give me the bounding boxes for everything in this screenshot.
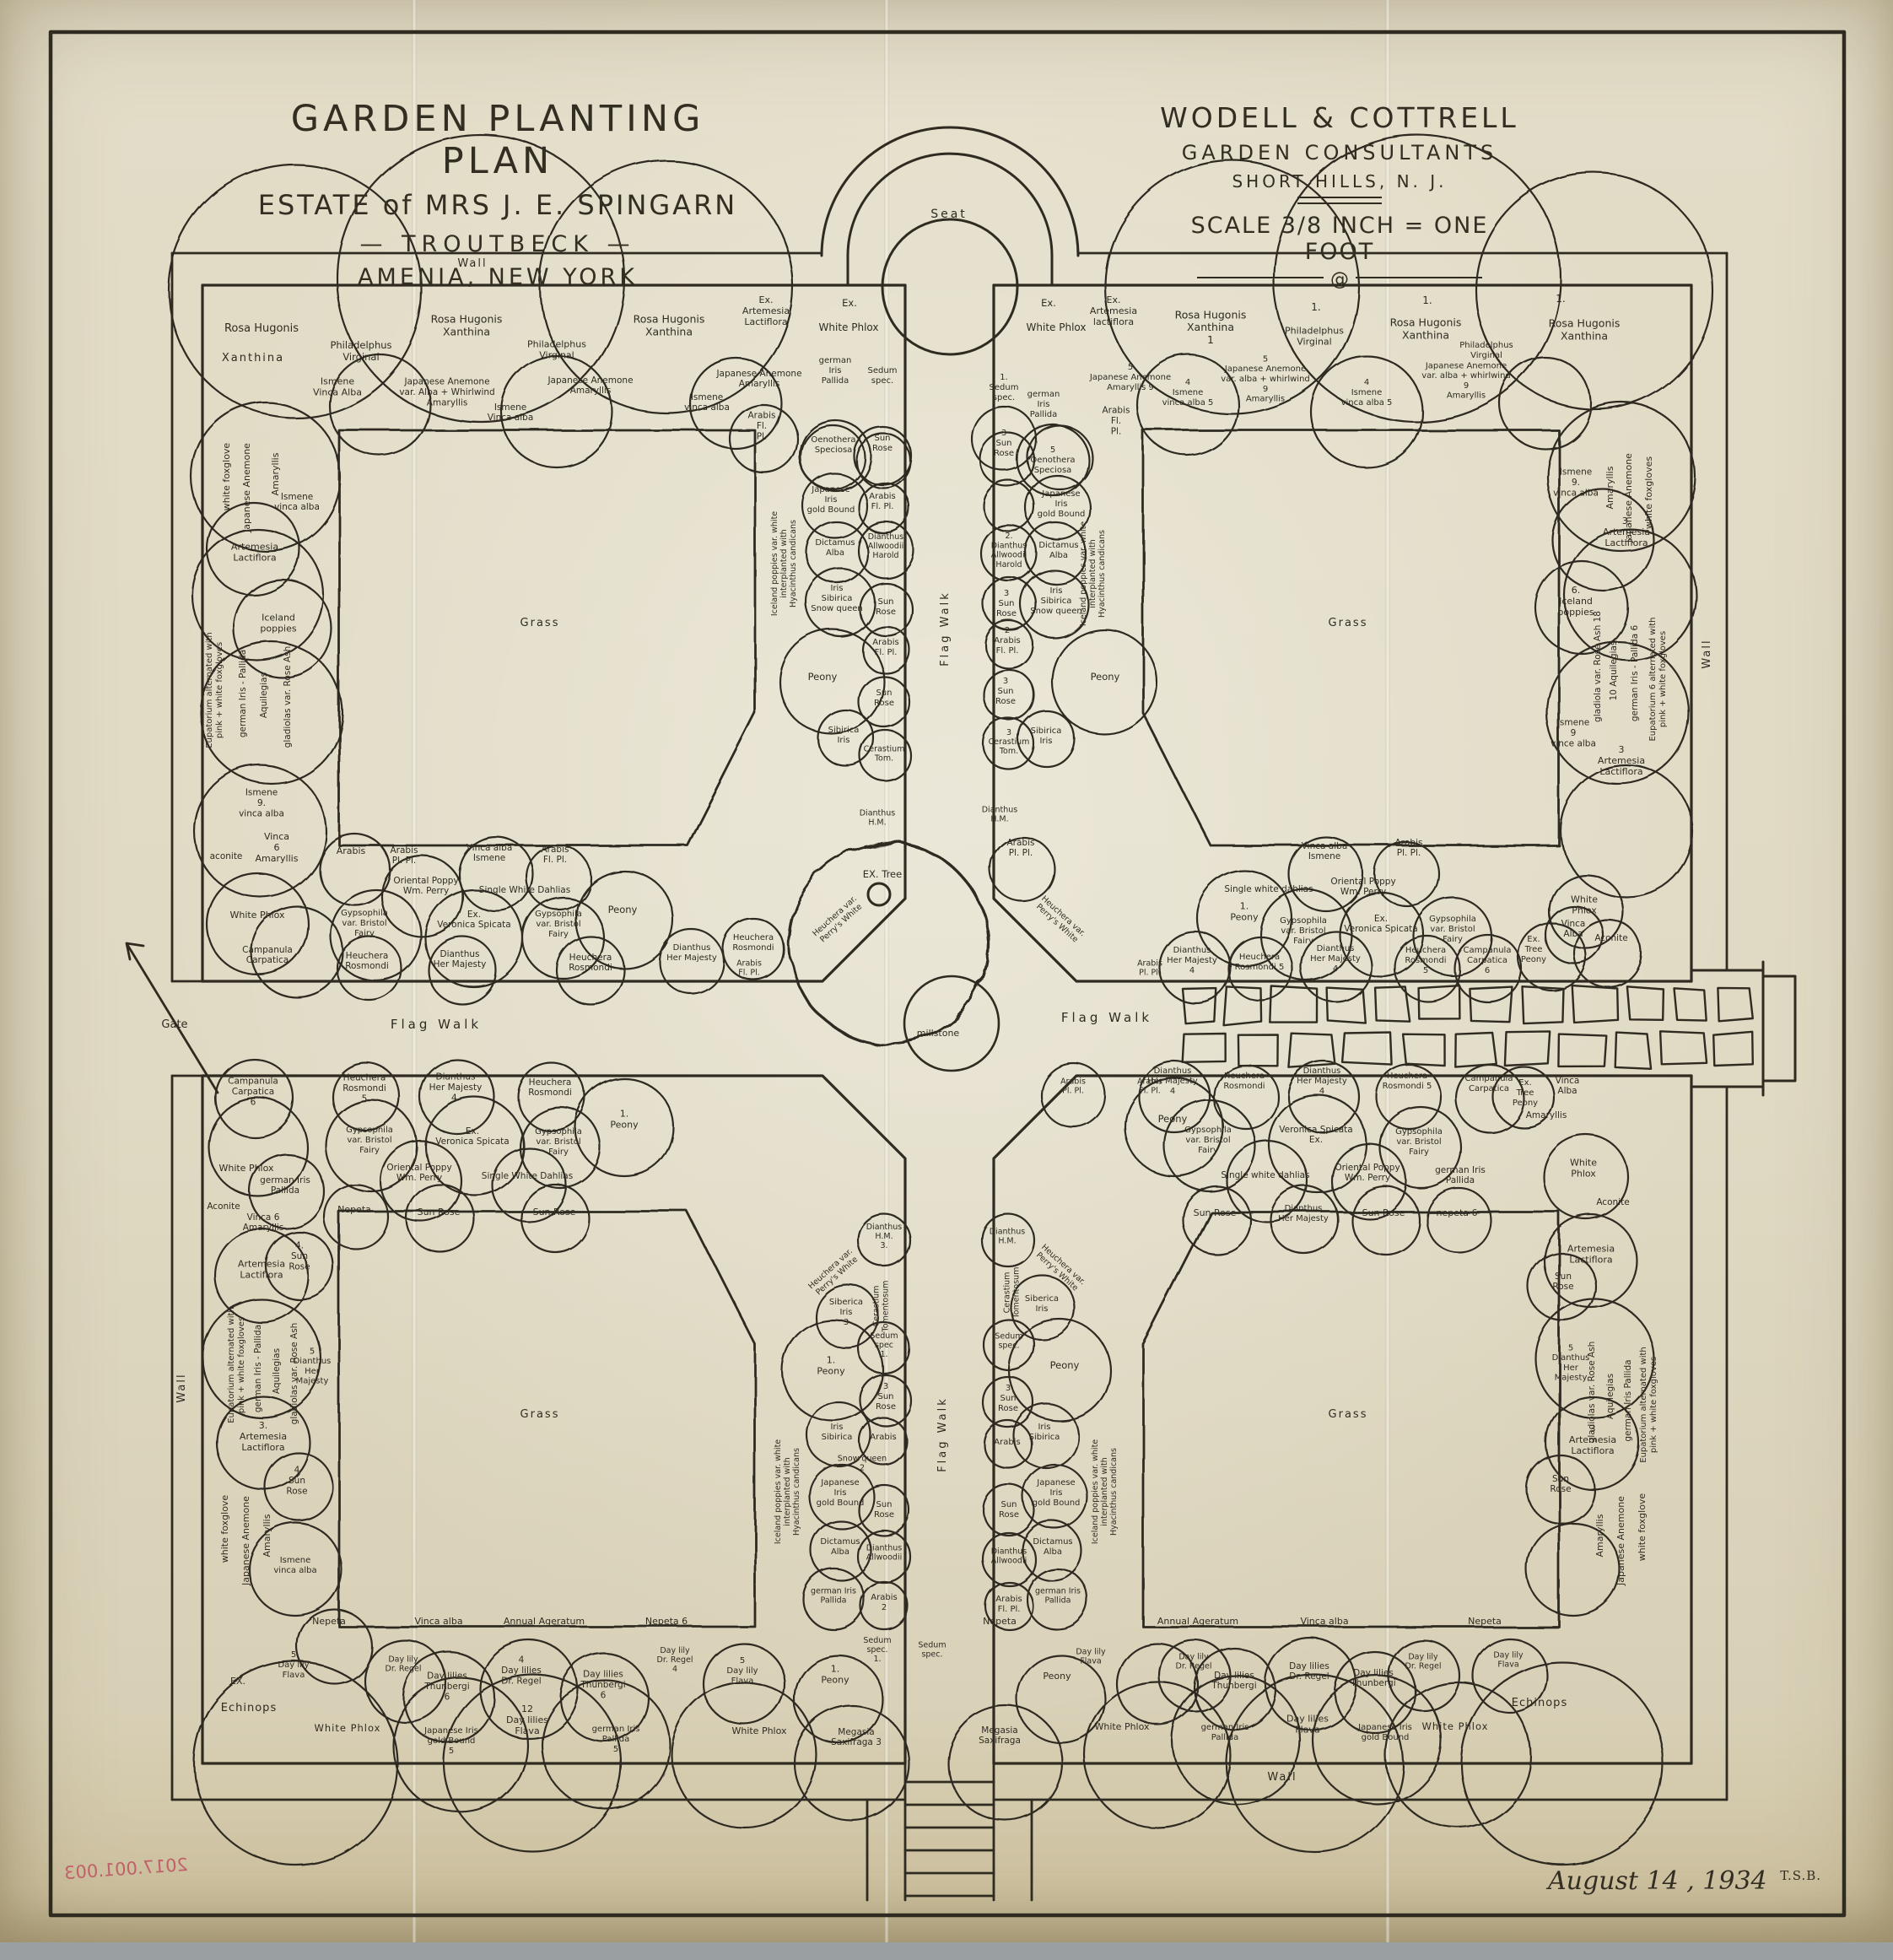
plant-label: 5OenotheraSpeciosa [1030, 445, 1075, 475]
plant-label: DictamusAlba [1038, 541, 1078, 560]
seat-apse-linework [822, 127, 1078, 354]
plant-label: DictamusAlba [820, 1537, 860, 1557]
plant-label: SunRose [1552, 1272, 1573, 1292]
gate-label: Gate [161, 1018, 187, 1031]
plant-label: Nepeta [312, 1616, 346, 1627]
plant-label: Peony [1043, 1671, 1071, 1682]
plan-labels: WallWallWallWallFlag WalkFlag WalkFlag W… [63, 208, 1713, 1883]
plant-label: Amaryllis [1526, 1110, 1567, 1120]
plant-label: Ex.Veronica Spicata [435, 1126, 509, 1147]
flagstone [1470, 987, 1512, 1023]
plant-label: SunRose [999, 1500, 1019, 1520]
plant-label: Gypsophilavar. BristolFairy [1395, 1127, 1443, 1157]
plant-label: Oriental PoppyWm. Perry [1330, 877, 1395, 897]
firm-block: WODELL & COTTRELL GARDEN CONSULTANTS SHO… [1154, 101, 1525, 288]
plant-label: HeucheraRosmondi5 [342, 1073, 386, 1104]
plant-label: Gypsophilavar. BristolFairy [346, 1126, 393, 1155]
plant-label: DianthusH.M.3. [866, 1223, 903, 1250]
plant-label: 1.Peony [610, 1109, 639, 1131]
plant-label: Eupatorium 6 alternated withpink + white… [1648, 617, 1668, 741]
flagstone [1713, 1032, 1753, 1066]
plant-label: ArabisPl. Pl. [1395, 838, 1423, 858]
plant-label: JapaneseIrisgold Bound [1033, 1478, 1081, 1508]
plant-label: 6.Icelandpoppies [1557, 585, 1594, 618]
plant-label: White Phlox [1094, 1721, 1150, 1732]
draftsman-initials: T.S.B. [1780, 1868, 1821, 1883]
plant-label: Rosa HugonisXanthina [634, 313, 705, 338]
plant-label: white foxglove [221, 443, 232, 511]
plant-label: PhiladelphusVirginal [1285, 326, 1344, 348]
scale-underline: @ [1154, 267, 1525, 288]
plant-label: DianthusAllwoodii [866, 1543, 903, 1562]
title-block: GARDEN PLANTING PLAN ESTATE of MRS J. E.… [253, 98, 742, 290]
millstone-circle [904, 976, 999, 1071]
plant-label: IrisSibirica [1029, 1423, 1060, 1442]
plant-label: Amaryllis [270, 452, 281, 495]
plant-label: Ex.ArtemesiaLactiflora [742, 294, 790, 327]
plant-label: german IrisPallida [260, 1175, 310, 1196]
plant-label: Veronica SpicataEx. [1279, 1125, 1352, 1145]
plant-label: White Phlox [1027, 321, 1087, 333]
plant-label: Single White Dahlias [479, 885, 570, 895]
plant-label: 4SunRose [286, 1466, 307, 1497]
wall-label-left: Wall [175, 1373, 188, 1402]
plant-label: 1.Peony [821, 1664, 849, 1686]
plant-label: Arabis [337, 845, 366, 856]
firm-underline [1297, 197, 1382, 204]
plant-label: Aquilegias [272, 1348, 282, 1394]
plant-label: 3SunRose [996, 589, 1017, 618]
plant-label: Ex.Veronica Spicata [437, 910, 510, 930]
scale-underline-left [1197, 277, 1324, 278]
plant-label: Aconite [1596, 1197, 1629, 1207]
plant-label: White Phlox [1421, 1720, 1488, 1732]
plant-label: Snow queen2 [838, 1454, 887, 1472]
plant-label: german IrisPallida [1201, 1723, 1249, 1742]
plant-label: germanIrisPallida [1027, 390, 1060, 419]
plant-label: CampanulaCarpatica [242, 945, 293, 965]
plant-label: White Phlox [218, 1163, 274, 1174]
plant-label: 2.DianthusAllwoodiiHarold [991, 532, 1027, 570]
plant-label: 3SunRose [876, 1382, 896, 1412]
bed-outline [324, 1185, 388, 1249]
plant-label: SibericaIris3 [829, 1298, 863, 1327]
plant-label: DianthusHer Majesty4 [1310, 944, 1361, 974]
plant-label: 5DianthusHerMajesty [1552, 1343, 1590, 1382]
plant-label: SibericaIris [1025, 1294, 1059, 1314]
location-line: AMENIA, NEW YORK [253, 264, 742, 290]
flagstone [1675, 988, 1707, 1020]
plant-label: 2ArabisFl. Pl. [994, 626, 1020, 656]
plant-label: CerastiumTomentosum [871, 1281, 890, 1333]
plant-label: Vinca alba [414, 1616, 462, 1627]
plant-label: ArtemesiaLactiflora [1567, 1244, 1615, 1266]
plant-label: DictamusAlba [815, 538, 855, 558]
plant-label: HeucheraRosmondi [732, 933, 774, 953]
grass-label: Grass [1329, 1408, 1368, 1421]
plant-label: Icelandpoppies [260, 613, 297, 634]
plant-label: IsmeneVinca alba [488, 402, 534, 423]
wall-label-right: Wall [1701, 639, 1713, 668]
plant-label: Sun Rose [533, 1207, 576, 1218]
flagstone [1572, 985, 1618, 1023]
plant-label: MegasiaSaxifraga [979, 1725, 1021, 1746]
plant-label: OenotheraSpeciosa [811, 435, 855, 455]
flagstone [1342, 1033, 1392, 1065]
plant-label: 1.Peony [1230, 901, 1259, 923]
plant-label: Peony [1158, 1113, 1188, 1125]
seat-label: Seat [930, 208, 968, 221]
plant-label: Peony [1050, 1359, 1080, 1371]
flagstone [1558, 1034, 1606, 1066]
plant-label: Sedumspec1. [870, 1331, 898, 1359]
plant-label: Gypsophilavar. BristolFairy [535, 910, 582, 939]
accession-number: 2017.001.003 [63, 1855, 188, 1883]
plant-label: 1. [1556, 293, 1565, 305]
plant-label: Day liliesFlava [1286, 1714, 1329, 1736]
plant-label: DianthusAllwoodii [991, 1547, 1027, 1565]
plant-label: Ex. [842, 297, 857, 309]
plant-label: Amaryllis [1594, 1514, 1605, 1557]
wall-label-bottom: Wall [1267, 1771, 1297, 1784]
flagstone [1660, 1031, 1707, 1064]
plant-label: Japanese Anemone [241, 443, 252, 533]
plant-label: Nepeta [983, 1616, 1017, 1627]
plant-label: Arabis [994, 1438, 1020, 1447]
plant-label: White Phlox [819, 321, 879, 333]
plant-label: 3SunRose [998, 1384, 1018, 1413]
plant-label: Japanese Anemone [1615, 1496, 1626, 1586]
plant-label: DianthusHer Majesty [666, 943, 717, 963]
plant-label: DianthusHer Majesty [1278, 1204, 1329, 1223]
flagstone [1403, 1034, 1445, 1066]
plant-label: 1. [1422, 294, 1432, 306]
plant-label: Japanese Irisgold Bound5 [423, 1726, 478, 1756]
plant-label: Eupatorium alternated withpink + white f… [205, 632, 224, 748]
plant-label: 3ArtemesiaLactiflora [1598, 744, 1645, 777]
bed-outline [1335, 1652, 1416, 1733]
plant-label: Heuchera var.Perry's White [811, 894, 865, 946]
drawing-date: August 14 , 1934 [1548, 1866, 1767, 1896]
plant-label: EX. [230, 1676, 245, 1687]
plant-label: Vinca alba [1300, 1616, 1348, 1627]
plant-label: Eupatorium alternated withpink + white f… [1639, 1347, 1658, 1463]
plant-label: white foxgloves [1643, 456, 1654, 529]
plant-label: white foxglove [219, 1495, 230, 1563]
plant-label: JapaneseIrisgold Bound [1038, 489, 1086, 519]
plant-label: ArabisFl.Pl. [1103, 406, 1130, 437]
garden-plan-drawing: WallWallWallWallFlag WalkFlag WalkFlag W… [0, 0, 1893, 1960]
plant-label: Single white dahlias [1221, 1170, 1309, 1180]
plant-label: SunRose [874, 1500, 894, 1520]
plant-label: Day lilyDr. Regel [1405, 1652, 1442, 1671]
plant-label: Day lilyFlava [1493, 1650, 1524, 1669]
plant-label: HeucheraRosmondi 5 [1235, 953, 1285, 972]
existing-tree-label: EX. Tree [863, 868, 902, 880]
bed-outline [1385, 1682, 1530, 1828]
plant-label: PhiladelphusVirginal [527, 339, 586, 361]
plant-label: nepeta 6 [1436, 1207, 1477, 1218]
steps-linework [867, 1763, 1032, 1900]
plant-label: MegasiaSaxifraga 3 [831, 1727, 882, 1747]
flagstone [1224, 986, 1262, 1025]
plant-label: Day lilyFlava [1076, 1647, 1106, 1666]
plant-label: Japanese Irisgold Bound [1357, 1723, 1412, 1742]
flagstone-corridor-linework [1691, 962, 1795, 1095]
plant-label: Day lilyDr. Regel [386, 1655, 422, 1673]
plant-label: SibiricaIris [828, 726, 860, 745]
plant-label: Gypsophilavar. BristolFairy [1280, 916, 1327, 946]
plant-label: DictamusAlba [1033, 1537, 1072, 1557]
plant-label: ArabisFl. Pl. [995, 1595, 1022, 1614]
plant-label: Sun Rose [418, 1207, 461, 1218]
plant-label: Rosa Hugonis [224, 322, 299, 335]
plant-label: Nepeta [337, 1204, 371, 1215]
plant-label: ArabisPl. Pl. [1137, 958, 1162, 977]
plant-label: SunRose [872, 434, 893, 453]
flagstone [1718, 988, 1752, 1021]
firm-role: GARDEN CONSULTANTS [1154, 141, 1525, 165]
plant-label: white foxglove [1637, 1493, 1648, 1562]
plant-label: Aquilegias [259, 672, 269, 718]
plant-label: HeucheraRosmondi 5 [1383, 1072, 1432, 1091]
plant-label: gladiola var. Rose Ash 18 [1593, 611, 1603, 722]
flagstone [1455, 1033, 1497, 1067]
bed-outline [1183, 1186, 1250, 1254]
firm-address: SHORT HILLS, N. J. [1154, 171, 1525, 192]
plant-label: 5Day lilyFlava [278, 1650, 309, 1680]
plant-label: Iceland poppies var. whiteinterplanted w… [1079, 521, 1107, 626]
plant-label: Amaryllis [1604, 466, 1615, 509]
plant-label: Single white dahlias [1224, 884, 1313, 894]
plant-label: Japanese Anemonevar. Alba + WhirlwindAma… [399, 377, 494, 408]
bed-outline [1389, 1640, 1459, 1711]
plant-label: Rosa HugonisXanthina [431, 313, 503, 338]
plant-label: HeucheraRosmondi [345, 951, 389, 971]
plant-label: Annual Ageratum [1157, 1616, 1238, 1627]
scale-underline-right [1356, 277, 1482, 278]
plant-label: Echinops [221, 1702, 277, 1714]
plant-label: aconite [210, 851, 243, 861]
flagstone [1183, 988, 1216, 1023]
plant-label: IrisSibiricaSnow queen [1030, 586, 1082, 616]
troutbeck-line: — TROUTBECK — [253, 231, 742, 257]
flagstone [1183, 1034, 1226, 1062]
flag-walk-label: Flag Walk [936, 1396, 949, 1472]
plant-label: Arabis2 [871, 1593, 897, 1612]
plant-label: Sedumspec. [995, 1331, 1022, 1350]
flag-walk-label: Flag Walk [1061, 1010, 1152, 1025]
flagstone [1419, 985, 1460, 1018]
plant-label: Rosa HugonisXanthina [1549, 317, 1621, 343]
plant-label: 3ArtemesiaLactiflora [1569, 1423, 1616, 1456]
flagstone [1505, 1031, 1550, 1066]
plant-label: SibiricaIris [1031, 726, 1062, 746]
plant-label: Rosa HugonisXanthina [1390, 316, 1462, 342]
bed-outline [407, 1185, 474, 1252]
plant-label: Oriental PoppyWm. Perry [386, 1163, 451, 1183]
plant-label: Single White Dahlias [482, 1171, 573, 1181]
plant-label: Heuchera var.Perry's White [806, 1247, 860, 1299]
plant-label: CampanulaCarpatica6 [228, 1077, 278, 1108]
plant-label: german Iris - Pallida [253, 1325, 263, 1412]
plant-label: HeucheraRosmondi [569, 953, 612, 973]
plant-label: White Phlox [314, 1722, 380, 1734]
plant-label: Vinca albaIsmene [1302, 841, 1348, 861]
firm-name: WODELL & COTTRELL [1154, 101, 1525, 134]
plant-label: 4Ismenevinca alba 5 [1162, 378, 1214, 408]
plant-label: Day liliesDr. Regel [1289, 1661, 1329, 1682]
plant-label: PhiladelphusVirginal [330, 339, 391, 363]
plant-label: gladiolas var. Rose Ash [289, 1323, 299, 1425]
plant-label: Sun Rose [1362, 1207, 1405, 1218]
plant-label: IrisSibiricaSnow queen [811, 584, 863, 613]
plant-label: 4Ismenevinca alba 5 [1341, 378, 1393, 408]
plant-label: Gypsophilavar. BristolFairy [1184, 1126, 1232, 1155]
plant-label: DianthusH.M. [860, 808, 896, 827]
plant-label: Japanese AnemoneAmaryllis [547, 375, 633, 396]
plant-label: DianthusHer Majesty4. [429, 1072, 483, 1104]
plant-label: Vinca6Amaryllis [256, 831, 299, 864]
plant-label: Gypsophilavar. BristolFairy [535, 1127, 582, 1157]
plant-label: Ex.Artemesialactiflora [1090, 294, 1137, 327]
plant-label: WhitePhlox [1570, 1158, 1597, 1180]
plant-label: Iceland poppies var. whiteinterplanted w… [774, 1439, 801, 1544]
scale-note: SCALE 3/8 INCH = ONE FOOT [1154, 213, 1525, 265]
plant-label: Oriental PoppyWm. Perry [393, 876, 458, 896]
plant-label: Vinca albaIsmene [467, 843, 513, 863]
estate-line: ESTATE of MRS J. E. SPINGARN [253, 189, 742, 221]
plant-label: german IrisPallida [1035, 1586, 1081, 1605]
plant-label: Sun Rose [1194, 1207, 1237, 1218]
existing-tree-trunk [868, 883, 890, 905]
plant-label: Arabis [870, 1433, 896, 1442]
plant-label: ArabisFl.Pl. [748, 411, 776, 442]
flag-walk-label: Flag Walk [391, 1017, 482, 1032]
millstone-label: millstone [917, 1028, 960, 1039]
plant-label: HeucheraRosmondi [1223, 1072, 1265, 1091]
plant-label: Ex.TreePeony [1513, 1078, 1538, 1108]
plant-label: ArabisFl. Pl. [869, 492, 895, 511]
plant-label: Ex.TreePeony [1521, 935, 1546, 964]
plant-label: SunRose [876, 597, 896, 617]
plant-label: 3.ArtemesiaLactiflora [240, 1420, 287, 1453]
plant-label: Iceland poppies var. whiteinterplanted w… [1091, 1439, 1119, 1544]
plant-label: 3SunRose [995, 677, 1016, 706]
plant-label: ArabisFl. Pl. [872, 638, 898, 657]
plant-label: german Iris Pallida [1623, 1359, 1633, 1441]
plant-label: DianthusHer Majesty4 [1297, 1066, 1347, 1096]
plant-label: DianthusAllwoodiiHarold [868, 532, 904, 560]
plant-label: Ismenevinca alba [274, 492, 320, 512]
plant-label: Sedumspec. [918, 1640, 946, 1659]
plant-label: WhitePhlox [1571, 894, 1598, 916]
flagstone [1523, 986, 1564, 1023]
plant-label: Ismene9.vinca alba [239, 788, 284, 819]
sheet-border [51, 32, 1844, 1915]
plant-label: 1.Peony [817, 1355, 845, 1377]
plant-label: JapaneseIrisgold Bound [807, 485, 855, 515]
bed-outline [1561, 765, 1692, 897]
plant-label: Japanese AnemoneAmaryllis [715, 369, 801, 389]
plant-label: Day lilyDr. Regel [1176, 1652, 1212, 1671]
flagstone [1238, 1035, 1278, 1066]
plant-label: Day liliesThunbergi6 [423, 1671, 469, 1703]
plant-label: Day lilyDr. Regel4 [657, 1646, 693, 1674]
plant-label: CerastiumTomentosum [1002, 1267, 1021, 1320]
plant-label: german IrisPallida [811, 1586, 856, 1605]
plant-label: PhiladelphusVirginal [1459, 341, 1513, 360]
grass-label: Grass [520, 617, 560, 629]
plant-label: Nepeta 6 [645, 1616, 688, 1627]
flagstone-paving [1183, 985, 1753, 1069]
plant-label: Sedumspec. [868, 366, 898, 386]
plant-label: ArabisPl. Pl. [1060, 1077, 1086, 1095]
plant-label: Day liliesThunbergi [1211, 1671, 1256, 1691]
plant-label: Annual Ageratum [504, 1616, 585, 1627]
plant-label: germanIrisPallida [819, 356, 852, 386]
plant-label: Peony [808, 671, 838, 683]
plant-label: Iceland poppies var. whiteinterplanted w… [770, 511, 798, 616]
plant-label: Nepeta [1468, 1616, 1502, 1627]
plant-label: IsmeneVinca Alba [313, 376, 362, 398]
flag-walk-label: Flag Walk [939, 591, 952, 667]
plant-label: HeucheraRosmondi5 [1405, 946, 1446, 975]
plant-label: Echinops [1512, 1697, 1567, 1709]
grass-label: Grass [1329, 617, 1368, 629]
plant-label: ArtemesiaLactiflora [238, 1259, 285, 1281]
bed-outline [521, 1185, 589, 1252]
plant-label: Amaryllis [262, 1514, 272, 1557]
plant-label: ArabisPl. Pl. [1007, 838, 1035, 858]
bed-outline [194, 765, 326, 897]
plant-label: german Iris - Pallida [238, 650, 248, 737]
plant-label: ArabisFl. Pl. [736, 958, 762, 977]
plant-label: Vinca 6Amaryllis [243, 1212, 284, 1233]
plant-label: ArabisFl. Pl. [542, 845, 569, 865]
bed-outline [1017, 1655, 1105, 1743]
plant-label: Heuchera var.Perry's White [1033, 894, 1087, 946]
bed-outline [1426, 1188, 1491, 1252]
plant-label: SunRose [1550, 1474, 1571, 1494]
plant-label: Sedumspec.1. [863, 1636, 891, 1664]
bed-outline [1527, 1523, 1620, 1616]
flagstone [1615, 1033, 1651, 1069]
plant-label: White Phlox [229, 910, 285, 921]
plant-label: 1. [1311, 301, 1320, 313]
date-block: August 14 , 1934 T.S.B. [1548, 1866, 1852, 1896]
sheet: WallWallWallWallFlag WalkFlag WalkFlag W… [0, 0, 1893, 1960]
plant-label: 10 Aquilegias [1609, 641, 1619, 701]
plant-label: 5Day lilyFlava [726, 1656, 758, 1686]
plant-label: Eupatorium alternated withpink + white f… [227, 1307, 246, 1423]
plant-label: CampanulaCarpatica [1465, 1074, 1513, 1093]
plant-label: DianthusHer Majesty4 [1167, 946, 1217, 975]
plant-label: 4Day liliesDr. Regel [501, 1655, 542, 1687]
plant-label: JapaneseIrisgold Bound [817, 1478, 865, 1508]
plant-label: gladiolas var. Rose Ash [283, 646, 293, 748]
plant-label: Oriental PoppyWm. Perry [1335, 1163, 1400, 1183]
plant-label: HeucheraRosmondi [528, 1077, 572, 1098]
plant-label: Ismene9vince alba [1551, 718, 1596, 749]
plant-label: Japanese Anemonevar. alba + whirlwind9Am… [1421, 361, 1511, 400]
plant-label: Ismenevinca alba [273, 1556, 316, 1575]
plant-label: Peony [608, 904, 638, 915]
plant-label: ArtemesiaLactiflora [231, 542, 278, 564]
plant-label: Rosa HugonisXanthina1 [1175, 308, 1247, 346]
plant-label: Japanese Anemone [240, 1496, 251, 1586]
scale-scroll-mark: @ [1330, 269, 1349, 290]
